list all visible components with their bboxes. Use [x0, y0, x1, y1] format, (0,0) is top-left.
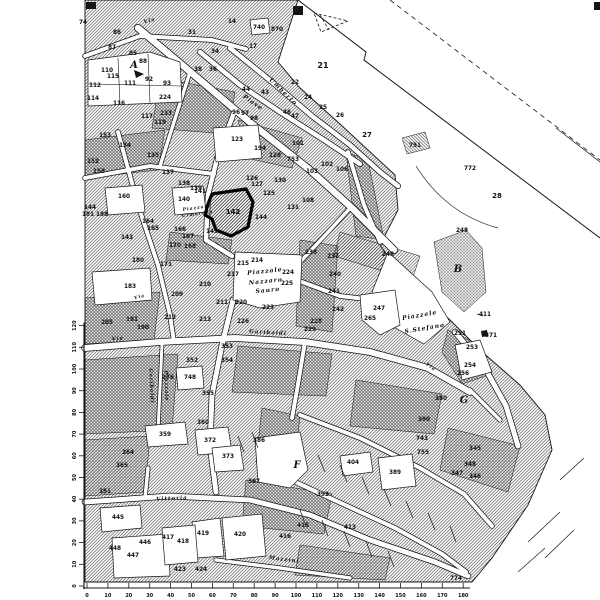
parcel-number: 131	[287, 205, 299, 211]
parcel-number: 229	[304, 327, 316, 333]
parcel-number: 111	[124, 81, 136, 87]
parcel-number: 211	[216, 300, 228, 306]
parcel-number: 389	[389, 470, 401, 476]
parcel-number: 448	[109, 546, 121, 552]
parcel-number: 233	[160, 111, 172, 117]
parcel-number: 212	[164, 315, 176, 321]
parcel-number: 205	[101, 320, 113, 326]
parcel-number: 93	[163, 81, 171, 87]
street-name-label: Via	[112, 335, 124, 342]
parcel-number: 108	[302, 198, 314, 204]
parcel-number: 870	[271, 27, 283, 33]
parcel-number: 14	[228, 19, 236, 25]
parcel-number: 215	[237, 261, 249, 267]
parcel-number: 102	[321, 162, 333, 168]
parcel-number: 415	[297, 523, 309, 529]
parcel-number: 138	[178, 181, 190, 187]
scale-bottom-label: 130	[353, 593, 364, 599]
parcel-number: 26	[336, 113, 344, 119]
building-letter-label: A	[129, 60, 138, 71]
parcel-number: 217	[227, 272, 239, 278]
parcel-number: 22	[291, 80, 299, 86]
white-parcel	[213, 125, 262, 162]
parcel-number: 390	[418, 417, 430, 423]
building-letter-label: F	[292, 460, 301, 471]
parcel-number: 419	[197, 531, 209, 537]
parcel-number: 153	[99, 133, 111, 139]
parcel-number: 140	[178, 197, 190, 203]
parcel-number: 127	[251, 182, 263, 188]
scale-left-label: 100	[72, 363, 78, 374]
scale-bottom-label: 170	[437, 593, 448, 599]
scale-bottom-label: 20	[125, 593, 132, 599]
white-parcel	[162, 525, 198, 565]
parcel-number: 748	[184, 375, 196, 381]
parcel-number: 27	[362, 131, 372, 139]
parcel-number: 24	[304, 95, 312, 101]
parcel-number: 351	[99, 489, 111, 495]
scale-bottom-label: 140	[374, 593, 385, 599]
parcel-number: 31	[188, 30, 196, 36]
parcel-number: 112	[89, 83, 101, 89]
scale-bottom-label: 110	[312, 593, 323, 599]
parcel-number: 134	[119, 143, 131, 149]
parcel-number: 114	[87, 96, 99, 102]
parcel-number: 413	[344, 525, 356, 531]
parcel-number: 237	[327, 254, 339, 260]
white-parcel	[105, 185, 145, 215]
parcel-number: 445	[112, 515, 124, 521]
parcel-number: 354	[221, 358, 233, 364]
parcel-number: 348	[464, 462, 476, 468]
parcel-number: 119	[154, 120, 166, 126]
parcel-number: 21	[317, 61, 329, 70]
parcel-number: 224	[282, 270, 294, 276]
parcel-number: 194	[254, 146, 266, 152]
parcel-number: 774	[450, 576, 462, 582]
parcel-number: 387	[248, 479, 260, 485]
black-mark	[594, 2, 600, 10]
scale-bottom-label: 40	[167, 593, 174, 599]
parcel-number: 143	[121, 235, 133, 241]
parcel-number: 183	[124, 284, 136, 290]
parcel-number: 743	[416, 436, 428, 442]
parcel-number: 144	[84, 205, 96, 211]
parcel-number: 213	[199, 317, 211, 323]
parcel-number: 740	[253, 25, 265, 31]
parcel-number: 359	[159, 432, 171, 438]
parcel-number: 753	[287, 157, 299, 163]
parcel-number: 355	[202, 391, 214, 397]
parcel-number: 25	[319, 105, 327, 111]
building-letter-label: B	[453, 264, 462, 275]
scale-bottom-label: 100	[291, 593, 302, 599]
parcel-number: 74	[79, 20, 87, 26]
parcel-number: 214	[251, 258, 263, 264]
parcel-number: 424	[195, 567, 207, 573]
parcel-number: 226	[237, 319, 249, 325]
parcel-number: 772	[464, 166, 476, 172]
cadastral-map: 1427486878588110115112111929311411611722…	[0, 0, 600, 600]
parcel-number: 417	[162, 535, 174, 541]
parcel-number: 352	[186, 358, 198, 364]
parcel-number: 85	[129, 51, 137, 57]
parcel-number: 241	[328, 289, 340, 295]
parcel-number: 171	[160, 262, 172, 268]
parcel-number: 117	[141, 114, 153, 120]
highlighted-parcel-number: 142	[226, 208, 241, 216]
parcel-number: 411	[479, 312, 491, 318]
parcel-number: 190	[137, 325, 149, 331]
parcel-number: 152	[87, 159, 99, 165]
parcel-number: 248	[456, 228, 468, 234]
parcel-number: 17	[249, 44, 257, 50]
parcel-number: 167	[182, 234, 194, 240]
scale-left-label: 70	[72, 430, 78, 437]
parcel-number: 446	[139, 540, 151, 546]
parcel-number: 238	[305, 250, 317, 256]
parcel-number: 755	[417, 450, 429, 456]
parcel-number: 416	[279, 534, 291, 540]
parcel-number: 372	[204, 438, 216, 444]
parcel-number: 144	[255, 215, 267, 221]
parcel-number: 34	[211, 49, 219, 55]
parcel-number: 101	[292, 141, 304, 147]
scale-bottom-label: 90	[272, 593, 279, 599]
scale-bottom-label: 160	[416, 593, 427, 599]
scale-left-label: 90	[72, 387, 78, 394]
scale-bottom-label: 10	[104, 593, 111, 599]
parcel-number: 345	[469, 446, 481, 452]
parcel-number: 141	[194, 189, 206, 195]
building-letter-label: G	[460, 395, 469, 406]
parcel-number: 115	[107, 74, 119, 80]
hatched-block	[232, 346, 332, 396]
parcel-number: 242	[332, 307, 344, 313]
scale-left-label: 10	[72, 560, 78, 567]
parcel-number: 256	[457, 371, 469, 377]
parcel-number: 209	[171, 292, 183, 298]
parcel-number: 130	[274, 178, 286, 184]
parcel-number: 353	[221, 344, 233, 350]
scale-left-label: 60	[72, 452, 78, 459]
parcel-number: 158	[93, 169, 105, 175]
parcel-number: 103	[306, 169, 318, 175]
parcel-number: 87	[108, 45, 116, 51]
parcel-number: 97	[241, 111, 249, 117]
parcel-number: 346	[469, 474, 481, 480]
scale-left-label: 110	[72, 342, 78, 353]
parcel-number: 47	[291, 114, 299, 120]
parcel-number: 166	[174, 227, 186, 233]
scale-bottom-label: 180	[458, 593, 469, 599]
parcel-number: 751	[409, 143, 421, 149]
street-name-label: Garibaldi	[147, 368, 154, 403]
scale-bottom-label: 70	[230, 593, 237, 599]
scale-bottom-label: 80	[251, 593, 258, 599]
parcel-number: 220	[235, 300, 247, 306]
parcel-number: 164	[142, 219, 154, 225]
black-mark	[86, 2, 96, 9]
parcel-number: 44	[242, 87, 250, 93]
scale-bottom-label: 60	[209, 593, 216, 599]
scale-bottom-label: 150	[395, 593, 406, 599]
parcel-number: 251	[454, 331, 466, 337]
parcel-number: 373	[222, 454, 234, 460]
parcel-number: 254	[464, 363, 476, 369]
parcel-number: 170	[169, 243, 181, 249]
parcel-number: 180	[132, 258, 144, 264]
parcel-number: 423	[174, 567, 186, 573]
scale-bottom-label: 120	[333, 593, 344, 599]
parcel-number: 36	[209, 67, 217, 73]
parcel-number: 160	[118, 194, 130, 200]
scale-left-label: 120	[72, 320, 78, 331]
scale-left-label: 50	[72, 474, 78, 481]
parcel-number: 98	[250, 116, 258, 122]
parcel-number: 128	[269, 153, 281, 159]
parcel-number: 123	[231, 137, 243, 143]
parcel-number: 380	[435, 396, 447, 402]
parcel-number: 106	[336, 167, 348, 173]
scale-bottom-label: 30	[146, 593, 153, 599]
parcel-number: 28	[492, 192, 502, 200]
parcel-number: 92	[145, 77, 153, 83]
scale-left-label: 20	[72, 539, 78, 546]
scale-left-label: 80	[72, 408, 78, 415]
parcel-number: 223	[262, 305, 274, 311]
parcel-number: 125	[263, 191, 275, 197]
parcel-number: 347	[451, 471, 463, 477]
parcel-number: 247	[373, 306, 385, 312]
street-name-label: Piazzale	[162, 369, 169, 401]
scale-left-label: 40	[72, 495, 78, 502]
parcel-number: 191	[126, 317, 138, 323]
parcel-number: 43	[261, 90, 269, 96]
parcel-number: 168	[184, 244, 196, 250]
parcel-number: 38	[194, 67, 202, 73]
parcel-number: 447	[127, 553, 139, 559]
parcel-number: 360	[197, 420, 209, 426]
scale-left-label: 30	[72, 517, 78, 524]
parcel-number: 392	[317, 492, 329, 498]
parcel-number: 188	[96, 212, 108, 218]
parcel-number: 386	[253, 438, 265, 444]
parcel-number: 86	[113, 30, 121, 36]
parcel-number: 165	[147, 226, 159, 232]
parcel-number: 135	[147, 153, 159, 159]
parcel-number: 137	[162, 170, 174, 176]
parcel-number: 404	[347, 460, 359, 466]
scale-left-label: 0	[72, 584, 78, 588]
black-mark	[293, 6, 303, 15]
parcel-number: 88	[139, 59, 147, 65]
parcel-number: 418	[177, 539, 189, 545]
parcel-number: 46	[283, 110, 291, 116]
parcel-number: 248	[382, 252, 394, 258]
parcel-number: 420	[234, 532, 246, 538]
parcel-number: 96	[232, 110, 240, 116]
parcel-number: 116	[113, 101, 125, 107]
parcel-number: 364	[122, 450, 134, 456]
parcel-number: 240	[329, 272, 341, 278]
parcel-number: 224	[159, 95, 171, 101]
scale-bottom-label: 50	[188, 593, 195, 599]
parcel-number: 265	[364, 316, 376, 322]
white-parcel	[92, 268, 152, 305]
scanned-cadastral-map-page: 1427486878588110115112111929311411611722…	[0, 0, 600, 600]
scale-bottom-label: 0	[85, 593, 89, 599]
parcel-number: 253	[466, 345, 478, 351]
parcel-number: 181	[82, 212, 94, 218]
parcel-number: 365	[116, 463, 128, 469]
parcel-number: 371	[485, 333, 497, 339]
parcel-number: 143	[206, 229, 218, 235]
parcel-number: 210	[199, 282, 211, 288]
parcel-number: 228	[310, 319, 322, 325]
